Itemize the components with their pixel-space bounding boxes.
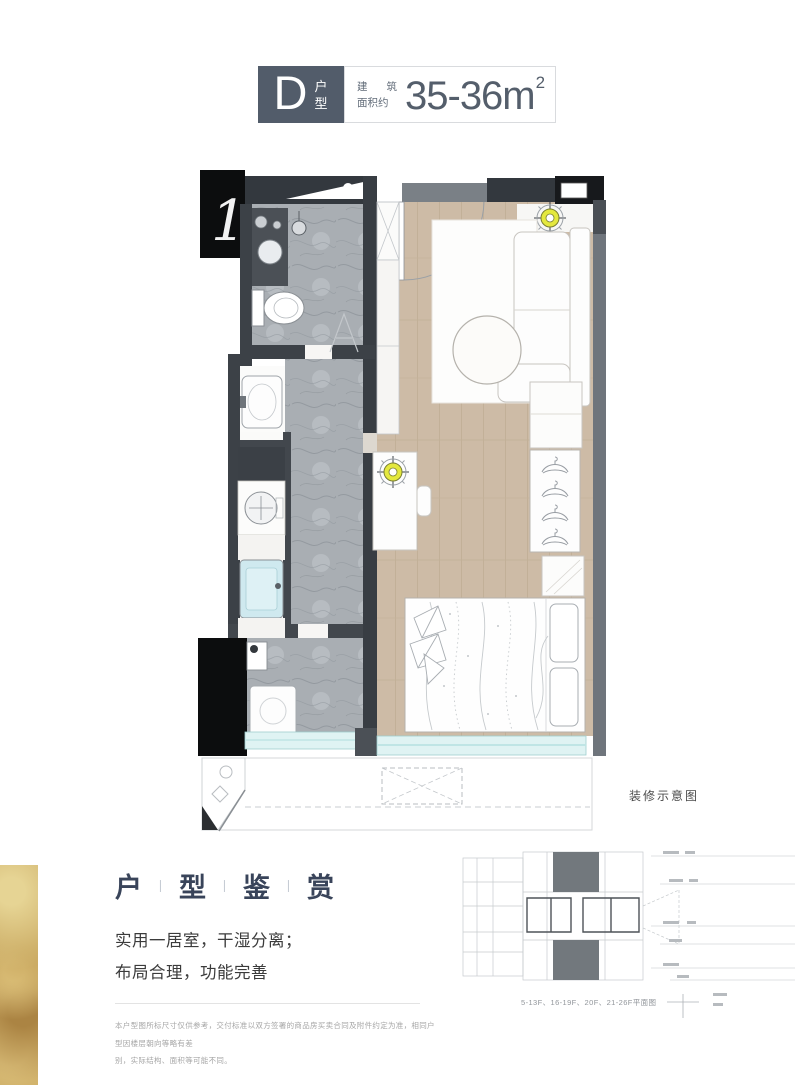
- appreciation-section: 户 丨 型 丨 鉴 丨 赏 实用一居室，干湿分离； 布局合理，功能完善 本户型图…: [115, 866, 425, 1069]
- title-char: 户: [115, 866, 143, 905]
- entry-door-leaf: [399, 202, 404, 280]
- title-separator: 丨: [154, 876, 168, 895]
- body-line-2: 布局合理，功能完善: [115, 957, 425, 989]
- bath-basin: [258, 240, 282, 264]
- sink-faucet: [275, 583, 281, 589]
- disclaimer: 本户型图所标尺寸仅供参考，交付标准以双方签署的商品房买卖合同及附件约定为准，相同…: [115, 1017, 435, 1069]
- highlight-unit-top: [553, 852, 599, 892]
- body-line-1: 实用一居室，干湿分离；: [115, 925, 425, 957]
- floorplan: 1: [198, 166, 618, 838]
- laundry-basin: [247, 642, 267, 670]
- area-label: 建 筑 面积约: [357, 80, 397, 112]
- unit-badge: D 户 型: [258, 66, 344, 123]
- title-char: 鉴: [243, 866, 271, 905]
- unit-word-top: 户: [314, 79, 328, 95]
- title-char: 型: [179, 866, 207, 905]
- window-mullion: [355, 728, 377, 756]
- leader-lines: [651, 856, 795, 980]
- title-char: 赏: [307, 866, 335, 905]
- wall-right: [593, 200, 606, 756]
- wall-bath-bottom-right: [332, 345, 375, 359]
- disclaimer-line-2: 别，实际结构、面积等可能不同。: [115, 1052, 435, 1069]
- area-sup: 2: [536, 74, 544, 91]
- washing-machine: [250, 686, 296, 736]
- pipe-shaft-lower: [198, 638, 247, 756]
- section-title: 户 丨 型 丨 鉴 丨 赏: [115, 866, 425, 905]
- keyplan-caption: 5-13F、16-19F、20F、21-26F平面图: [521, 997, 656, 1008]
- desk-chair: [417, 486, 431, 516]
- divider-door-gap: [363, 433, 377, 453]
- pillow: [550, 604, 578, 662]
- page: D 户 型 建 筑 面积约 35-36m2: [0, 0, 800, 1085]
- divider: [115, 1003, 420, 1004]
- kitchen-counter: [238, 535, 285, 560]
- corridor-floor: [285, 356, 363, 638]
- wall-bath-bottom-left: [245, 345, 305, 359]
- unit-header: D 户 型 建 筑 面积约 35-36m2: [258, 66, 556, 123]
- vanity-faucet: [240, 396, 246, 408]
- core-walls: [527, 898, 639, 932]
- unit-word-bottom: 型: [314, 96, 328, 112]
- area-value: 35-36m2: [405, 76, 544, 116]
- kitchen-counter-dark: [238, 447, 285, 481]
- keyplan: [455, 848, 800, 1020]
- area-label-bottom: 面积约: [357, 96, 397, 112]
- area-label-top: 建 筑: [357, 80, 397, 96]
- leader-labels: [663, 851, 727, 1006]
- coffee-table: [453, 316, 521, 384]
- downlight-icon: [377, 456, 409, 488]
- downlight-icon: [534, 202, 566, 234]
- shower-head: [292, 221, 306, 235]
- plan-note: 装修示意图: [629, 787, 699, 804]
- caption-marker: [667, 994, 699, 1018]
- wall-left-upper: [240, 204, 252, 356]
- toilet-tank: [252, 290, 264, 326]
- title-separator: 丨: [218, 876, 232, 895]
- bath-door-gap: [305, 345, 332, 359]
- laundry-door-gap: [298, 624, 328, 638]
- entry-lintel: [402, 183, 487, 202]
- sofa-back: [570, 228, 590, 406]
- wall-right-top: [593, 200, 606, 234]
- title-separator: 丨: [282, 876, 296, 895]
- wall-dot: [343, 183, 353, 193]
- pillow: [550, 668, 578, 726]
- disclaimer-line-1: 本户型图所标尺寸仅供参考，交付标准以双方签署的商品房买卖合同及附件约定为准，相同…: [115, 1017, 435, 1052]
- tall-cabinet: [530, 382, 582, 448]
- area-badge: 建 筑 面积约 35-36m2: [344, 66, 556, 123]
- bath-accessory: [255, 216, 267, 228]
- gold-foil-strip: [0, 865, 38, 1085]
- bath-accessory: [273, 221, 281, 229]
- wall-top-right: [487, 178, 555, 202]
- laundry-tap: [250, 645, 258, 653]
- highlight-unit-bottom: [553, 940, 599, 980]
- unit-word: 户 型: [314, 79, 328, 112]
- section-body: 实用一居室，干湿分离； 布局合理，功能完善: [115, 925, 425, 989]
- hall-cabinet: [377, 260, 399, 434]
- unit-letter: D: [274, 69, 308, 116]
- corner-vent: [561, 183, 587, 198]
